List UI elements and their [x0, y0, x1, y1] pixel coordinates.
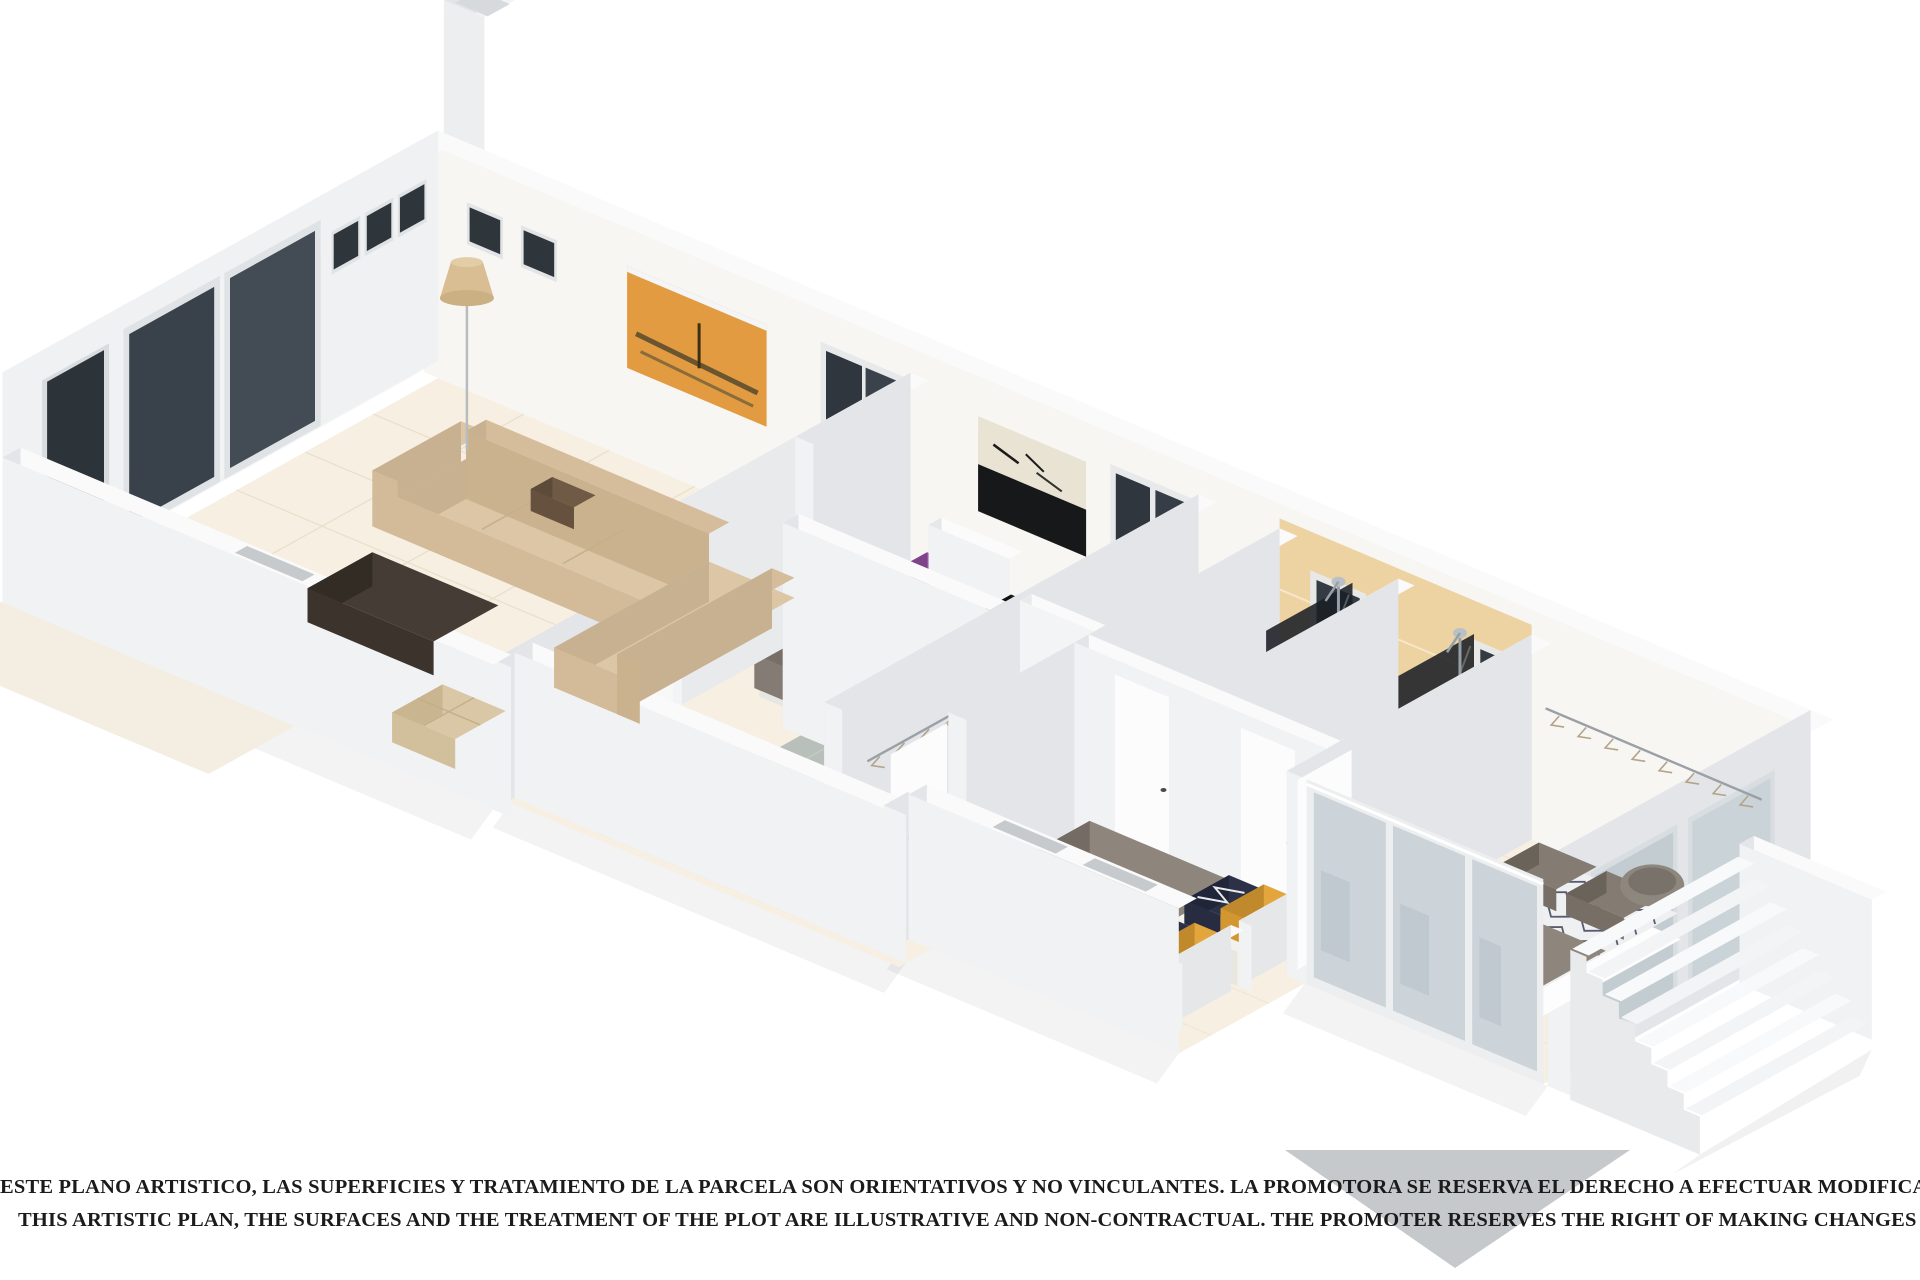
disclaimer-line-spanish: ESTE PLANO ARTISTICO, LAS SUPERFICIES Y … — [0, 1171, 1920, 1204]
disclaimer-line-english: THIS ARTISTIC PLAN, THE SURFACES AND THE… — [18, 1204, 1548, 1237]
floorplan-page: ESTE PLANO ARTISTICO, LAS SUPERFICIES Y … — [0, 0, 1920, 1280]
disclaimer: ESTE PLANO ARTISTICO, LAS SUPERFICIES Y … — [0, 1171, 1920, 1237]
floor-plan-3d-render — [0, 0, 1920, 1280]
